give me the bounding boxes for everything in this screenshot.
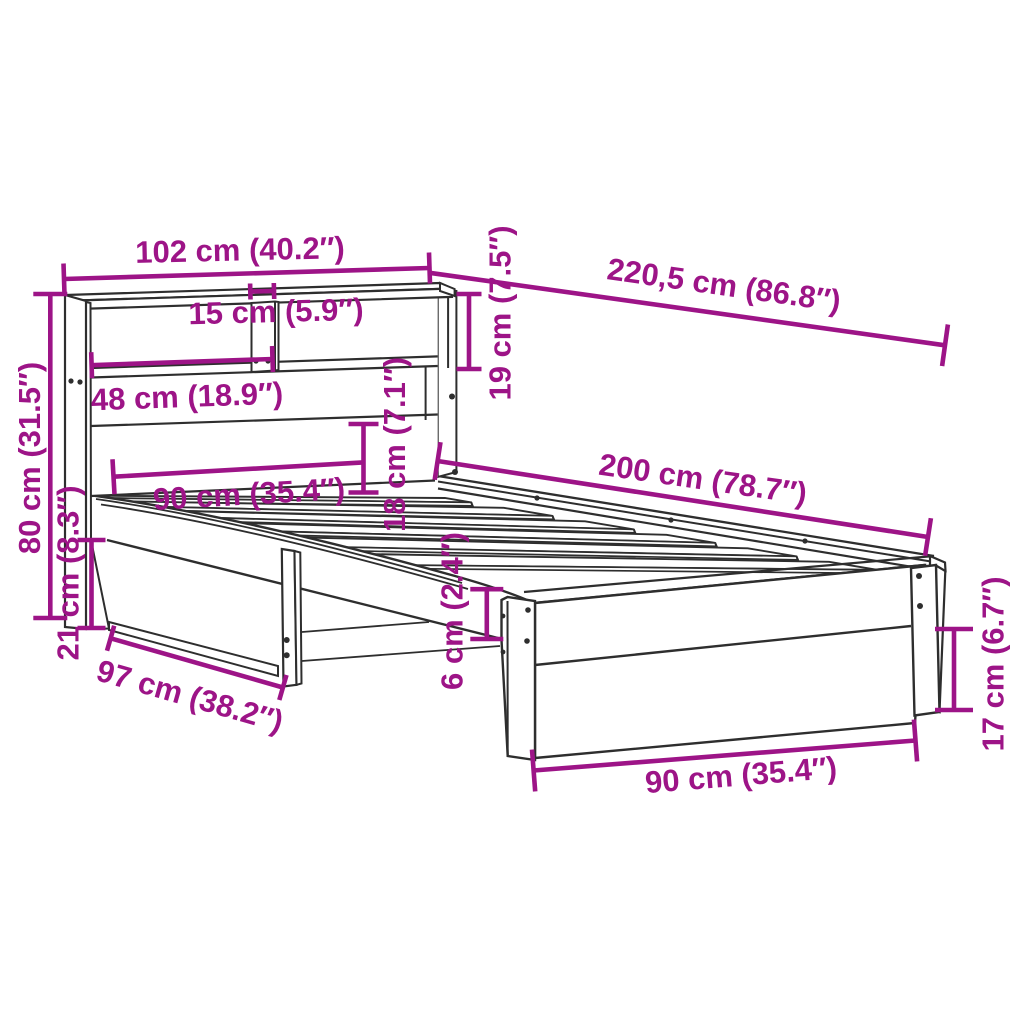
svg-text:17 cm (6.7″): 17 cm (6.7″) [976,576,1011,751]
svg-text:48 cm (18.9″): 48 cm (18.9″) [90,376,283,418]
svg-text:6 cm (2.4″): 6 cm (2.4″) [435,532,470,690]
svg-text:19 cm (7.5″): 19 cm (7.5″) [483,225,518,400]
svg-text:15 cm (5.9″): 15 cm (5.9″) [188,292,364,332]
svg-text:21 cm (8.3″): 21 cm (8.3″) [51,485,86,660]
svg-text:80 cm (31.5″): 80 cm (31.5″) [12,362,47,554]
svg-text:102 cm (40.2″): 102 cm (40.2″) [135,230,345,270]
svg-text:18 cm (7.1″): 18 cm (7.1″) [377,357,412,532]
